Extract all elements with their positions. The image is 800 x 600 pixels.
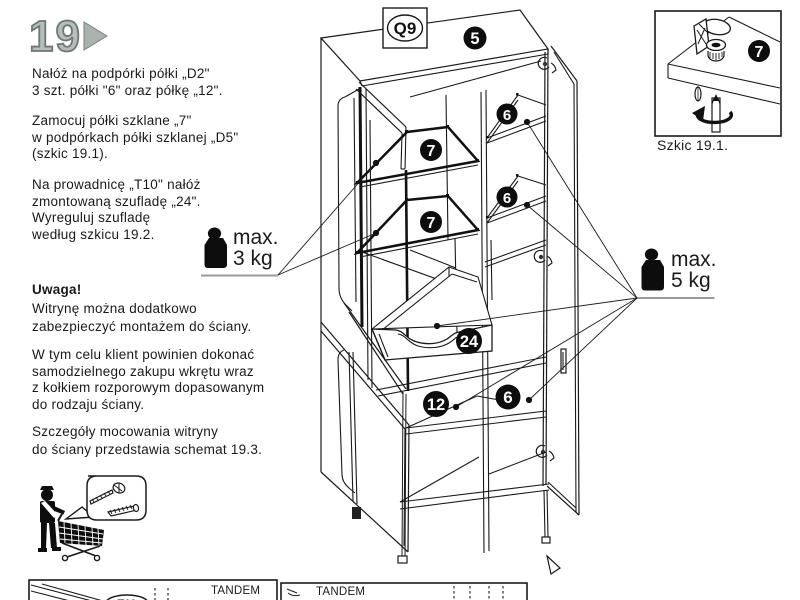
svg-text:7: 7 [755, 44, 764, 61]
svg-text:Q9: Q9 [394, 19, 417, 38]
svg-text:5: 5 [470, 30, 479, 48]
svg-text:6: 6 [503, 190, 511, 207]
svg-text:24: 24 [460, 333, 479, 351]
svg-text:7: 7 [427, 143, 436, 160]
svg-text:7: 7 [427, 215, 436, 232]
svg-text:6: 6 [503, 388, 512, 407]
svg-text:12: 12 [427, 396, 445, 414]
svg-text:6: 6 [503, 107, 511, 124]
